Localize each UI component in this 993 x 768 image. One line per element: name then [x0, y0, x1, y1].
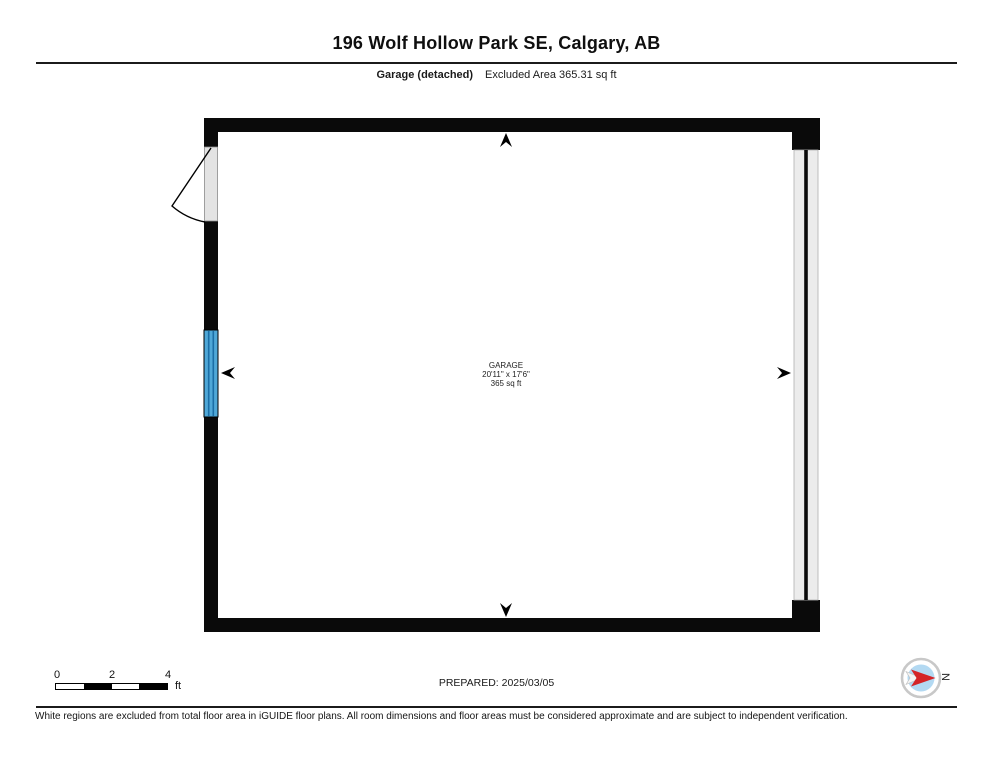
room-name: GARAGE — [489, 361, 523, 370]
garage-door — [794, 150, 818, 600]
room-area: 365 sq ft — [491, 379, 522, 388]
door-leaf — [205, 147, 218, 221]
footer-divider — [36, 706, 957, 708]
wall-left-upper — [204, 118, 218, 147]
room-label: GARAGE 20'11" x 17'6" 365 sq ft — [482, 361, 530, 388]
wall-bottom — [204, 618, 820, 632]
window-frame — [204, 330, 218, 417]
dimension-arrow-left-icon — [221, 367, 235, 379]
room-dimensions: 20'11" x 17'6" — [482, 370, 530, 379]
wall-left-lower — [204, 417, 218, 632]
floorplan-drawing: GARAGE 20'11" x 17'6" 365 sq ft — [0, 0, 993, 768]
prepared-date: PREPARED: 2025/03/05 — [0, 677, 993, 689]
entry-door — [172, 147, 218, 222]
wall-right-lower-stub — [792, 600, 820, 632]
dimension-arrow-down-icon — [500, 603, 512, 617]
compass-north-label: N — [939, 673, 951, 681]
wall-top — [204, 118, 820, 132]
wall-left-middle — [204, 221, 218, 330]
dimension-arrow-right-icon — [777, 367, 791, 379]
dimension-arrow-up-icon — [500, 133, 512, 147]
floorplan-page: 196 Wolf Hollow Park SE, Calgary, AB Gar… — [0, 0, 993, 768]
wall-right-upper-stub — [792, 118, 820, 150]
disclaimer-text: White regions are excluded from total fl… — [35, 711, 973, 722]
window — [204, 330, 218, 417]
garage-door-panel-line — [804, 150, 808, 600]
compass-icon — [898, 656, 944, 700]
